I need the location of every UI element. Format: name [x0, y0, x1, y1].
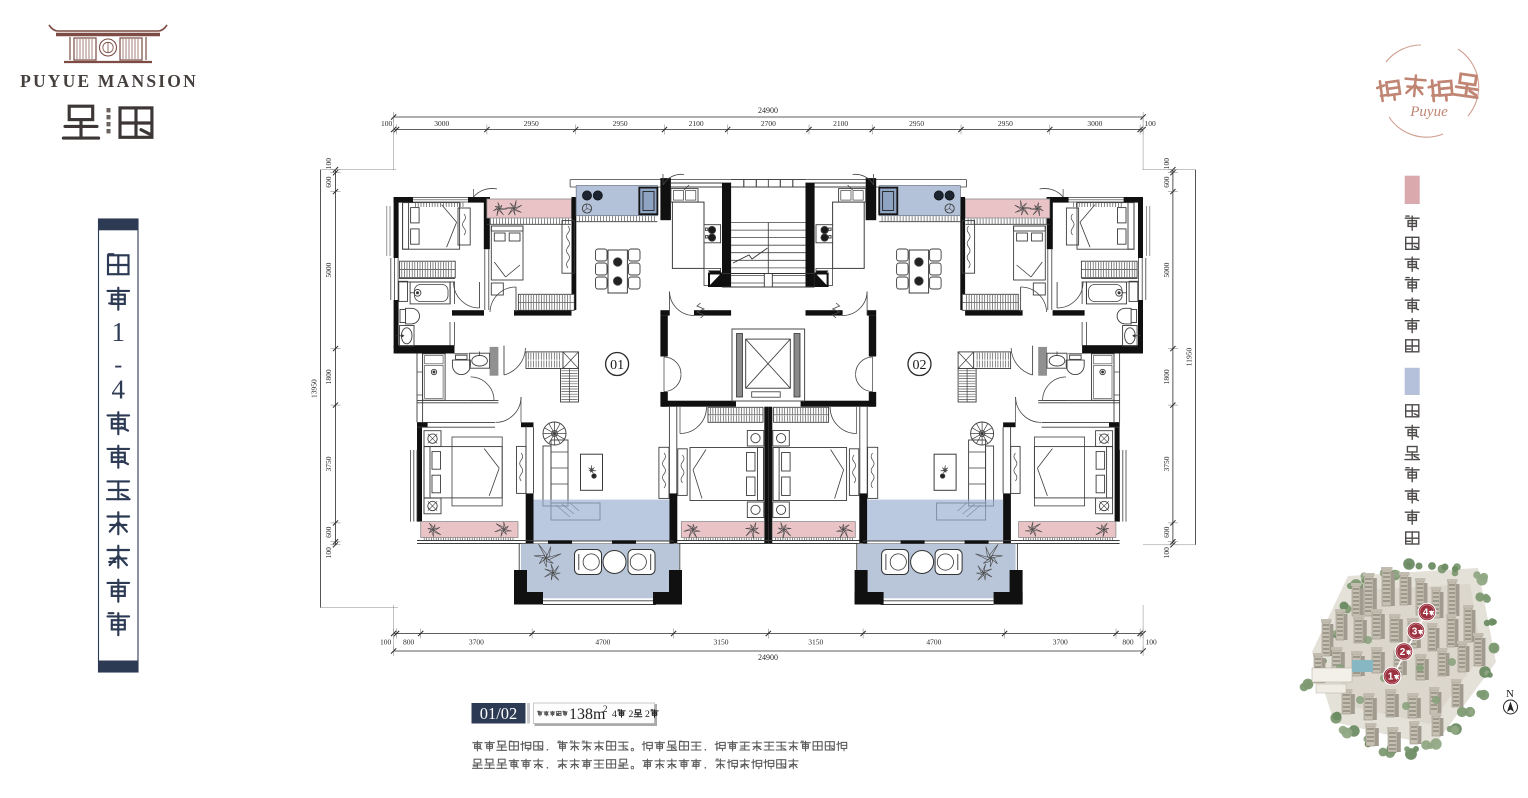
svg-text:2: 2	[629, 709, 634, 720]
svg-text:Puyue: Puyue	[1409, 104, 1448, 120]
svg-text:138m: 138m	[569, 706, 606, 723]
svg-text:3: 3	[1412, 627, 1418, 638]
svg-text:N: N	[1506, 688, 1514, 700]
svg-text:1: 1	[1388, 672, 1394, 683]
svg-text:4: 4	[1423, 608, 1429, 619]
svg-text:2: 2	[1400, 647, 1406, 658]
svg-text:2: 2	[603, 704, 608, 714]
svg-text:2: 2	[645, 709, 650, 720]
svg-text:01/02: 01/02	[480, 704, 518, 723]
svg-text:4: 4	[612, 709, 617, 720]
